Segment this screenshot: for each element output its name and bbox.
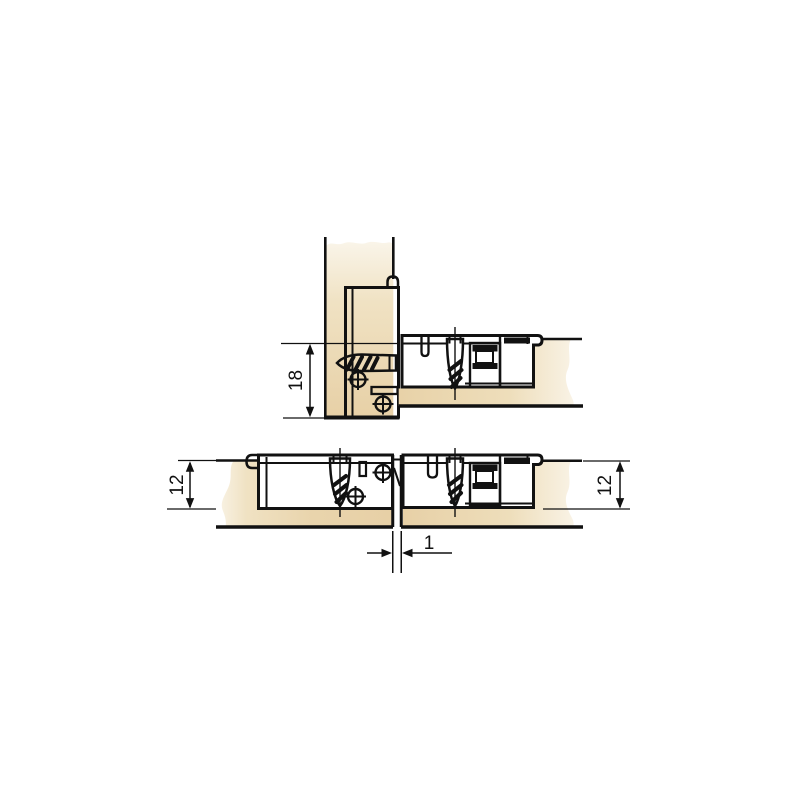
dimension-18: 18 <box>283 344 324 418</box>
housing-slot <box>360 462 367 476</box>
arrowhead-up <box>306 344 314 355</box>
arrowhead-left <box>402 549 413 557</box>
arrowhead-up <box>616 461 624 472</box>
phillips-screw-head <box>373 462 394 483</box>
bottom-assembly <box>216 448 583 527</box>
dimension-label: 12 <box>167 474 188 495</box>
bottom-right-connector-housing <box>403 448 542 517</box>
diagram-canvas: 18 12 12 1 <box>0 0 800 800</box>
bottom-left-panel <box>222 461 393 528</box>
bottom-left-connector-housing <box>247 448 394 517</box>
dimension-label: 1 <box>424 533 435 554</box>
housing-slot <box>422 337 429 356</box>
technical-drawing: 18 12 12 1 <box>0 0 800 800</box>
vertical-panel <box>325 242 393 418</box>
connector-bolt <box>330 448 350 517</box>
arrowhead-down <box>306 407 314 418</box>
cam-block <box>470 336 530 387</box>
phillips-screw-head <box>345 486 366 507</box>
dimension-label: 12 <box>595 475 616 496</box>
dimension-gap-1: 1 <box>367 531 452 573</box>
dimension-12-left: 12 <box>167 461 216 510</box>
top-assembly <box>281 237 583 418</box>
arrowhead-up <box>186 461 194 472</box>
arrowhead-down <box>186 498 194 509</box>
cam-block <box>470 456 530 506</box>
housing-slot <box>428 457 437 478</box>
arrowhead-down <box>616 498 624 509</box>
arrowhead-right <box>382 549 393 557</box>
dimension-label: 18 <box>286 370 307 391</box>
